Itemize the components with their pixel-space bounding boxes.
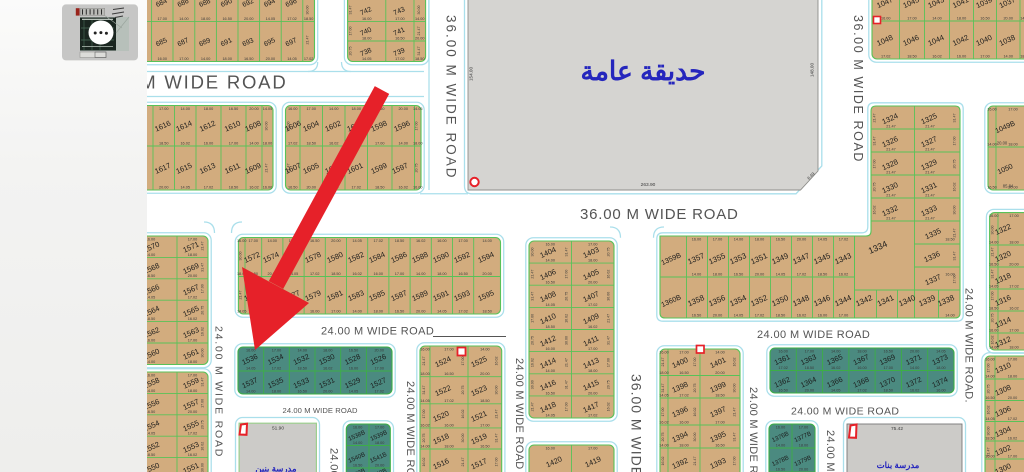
svg-text:21.47: 21.47 (201, 242, 205, 251)
svg-text:16.00: 16.00 (545, 347, 555, 351)
svg-text:18.00: 18.00 (588, 259, 598, 263)
svg-text:20.75: 20.75 (461, 386, 465, 395)
svg-text:148.00: 148.00 (810, 63, 815, 77)
svg-text:16.02: 16.02 (352, 272, 362, 276)
svg-text:20.75: 20.75 (607, 248, 611, 257)
svg-text:17.00: 17.00 (158, 17, 168, 21)
svg-text:17.02: 17.02 (374, 239, 384, 243)
svg-text:85.84: 85.84 (1003, 184, 1014, 189)
svg-text:20.75: 20.75 (953, 160, 957, 169)
svg-text:20.00: 20.00 (159, 185, 169, 189)
svg-text:14.05: 14.05 (985, 417, 995, 421)
svg-text:14.00: 14.00 (987, 142, 997, 146)
svg-text:14.00: 14.00 (201, 57, 211, 61)
svg-text:17.02: 17.02 (1008, 417, 1018, 421)
svg-text:16.02: 16.02 (987, 406, 991, 415)
svg-text:20.00: 20.00 (588, 281, 598, 285)
svg-text:21.47: 21.47 (987, 448, 991, 457)
svg-text:16.50: 16.50 (458, 272, 468, 276)
svg-text:21.47: 21.47 (531, 402, 535, 411)
svg-text:16.02: 16.02 (839, 272, 849, 276)
svg-text:17.00: 17.00 (907, 16, 917, 20)
svg-text:18.50: 18.50 (395, 239, 405, 243)
svg-text:14.00: 14.00 (480, 348, 490, 352)
svg-text:16.00: 16.00 (985, 358, 995, 362)
svg-text:17.00: 17.00 (953, 275, 957, 284)
svg-text:16.02: 16.02 (831, 366, 841, 370)
svg-text:21.47: 21.47 (531, 270, 535, 279)
svg-text:16.50: 16.50 (288, 185, 298, 189)
svg-text:18.00: 18.00 (375, 441, 385, 445)
svg-text:18.50: 18.50 (304, 17, 314, 21)
svg-text:18.00: 18.00 (936, 366, 946, 370)
svg-text:20.75: 20.75 (349, 47, 353, 56)
svg-text:18.00: 18.00 (222, 57, 232, 61)
svg-text:18.00: 18.00 (188, 360, 198, 364)
svg-text:14.05: 14.05 (287, 57, 297, 61)
svg-text:16.00: 16.00 (659, 351, 669, 355)
svg-text:18.00: 18.00 (755, 238, 765, 242)
svg-text:14.00: 14.00 (268, 239, 278, 243)
svg-text:18.00: 18.00 (437, 272, 447, 276)
svg-text:18.00: 18.00 (588, 369, 598, 373)
svg-text:18.00: 18.00 (659, 371, 669, 375)
svg-text:16.00: 16.00 (362, 17, 372, 21)
svg-text:16.50: 16.50 (679, 371, 689, 375)
svg-text:20.00: 20.00 (323, 389, 333, 393)
svg-text:16.00: 16.00 (818, 313, 828, 317)
svg-text:16.00: 16.00 (420, 348, 430, 352)
svg-text:16.50: 16.50 (480, 444, 490, 448)
svg-text:30.00: 30.00 (201, 463, 205, 472)
svg-text:20.75: 20.75 (607, 380, 611, 389)
svg-text:20.75: 20.75 (201, 306, 205, 315)
svg-text:16.02: 16.02 (461, 410, 465, 419)
svg-text:20.00: 20.00 (416, 309, 426, 313)
svg-text:263.90: 263.90 (641, 182, 656, 188)
svg-text:21.47: 21.47 (422, 357, 426, 366)
svg-text:18.00: 18.00 (713, 272, 723, 276)
svg-text:16.00: 16.00 (310, 309, 320, 313)
svg-text:36.00 M WIDE ROAD: 36.00 M WIDE ROAD (444, 15, 459, 180)
svg-text:16.02: 16.02 (565, 314, 569, 323)
svg-text:16.00: 16.00 (444, 423, 454, 427)
svg-text:14.00: 14.00 (734, 238, 744, 242)
svg-text:16.00: 16.00 (437, 239, 447, 243)
svg-text:17.02: 17.02 (679, 393, 689, 397)
svg-text:16.00: 16.00 (263, 185, 273, 189)
svg-text:21.47: 21.47 (495, 410, 499, 419)
svg-text:16.50: 16.50 (244, 57, 254, 61)
svg-text:18.50: 18.50 (480, 399, 490, 403)
svg-text:17.00: 17.00 (422, 410, 426, 419)
svg-text:20.75: 20.75 (873, 183, 877, 192)
svg-text:31.47: 31.47 (201, 378, 205, 387)
svg-text:17.02: 17.02 (351, 185, 361, 189)
svg-text:14.00: 14.00 (545, 259, 555, 263)
svg-text:18.00: 18.00 (444, 444, 454, 448)
svg-text:16.50: 16.50 (715, 443, 725, 447)
svg-text:17.02: 17.02 (374, 389, 384, 393)
svg-text:16.02: 16.02 (422, 458, 426, 467)
svg-text:17.00: 17.00 (249, 239, 259, 243)
svg-text:21.47: 21.47 (925, 147, 935, 151)
svg-text:16.00: 16.00 (857, 366, 867, 370)
svg-text:31.47: 31.47 (733, 433, 737, 442)
svg-text:17.02: 17.02 (881, 54, 891, 58)
svg-text:17.00: 17.00 (349, 27, 353, 36)
svg-text:17.02: 17.02 (1009, 284, 1019, 288)
svg-text:16.02: 16.02 (188, 317, 198, 321)
svg-text:17.00: 17.00 (229, 141, 239, 145)
svg-text:20.00: 20.00 (713, 313, 723, 317)
svg-text:31.47: 31.47 (531, 292, 535, 301)
svg-text:14.00: 14.00 (246, 389, 256, 393)
svg-text:20.00: 20.00 (480, 372, 490, 376)
svg-text:17.00: 17.00 (179, 57, 189, 61)
svg-text:21.47: 21.47 (925, 124, 935, 128)
svg-text:17.00: 17.00 (1008, 454, 1018, 458)
svg-text:14.05: 14.05 (437, 309, 447, 313)
svg-text:16.02: 16.02 (180, 141, 190, 145)
svg-text:16.00: 16.00 (288, 107, 298, 111)
svg-text:16.02: 16.02 (953, 183, 957, 192)
svg-text:20.00: 20.00 (797, 238, 807, 242)
svg-text:14.00: 14.00 (545, 369, 555, 373)
svg-text:21.47: 21.47 (607, 314, 611, 323)
svg-text:30.00: 30.00 (201, 349, 205, 358)
svg-text:36.00 M WIDE ROAD: 36.00 M WIDE ROAD (851, 15, 865, 163)
svg-text:24.00 M WIDE ROAD: 24.00 M WIDE ROAD (757, 329, 870, 341)
svg-text:30.00: 30.00 (265, 122, 269, 131)
svg-text:18.50: 18.50 (776, 313, 786, 317)
svg-text:24.00 M WIDE ROAD: 24.00 M WIDE ROAD (321, 326, 434, 338)
svg-text:18.00: 18.00 (1008, 374, 1018, 378)
svg-text:16.02: 16.02 (495, 357, 499, 366)
svg-text:17.00: 17.00 (395, 272, 405, 276)
svg-text:31.47: 31.47 (565, 380, 569, 389)
svg-text:16.50: 16.50 (980, 16, 990, 20)
svg-text:36.00 M WIDE ROAD: 36.00 M WIDE ROAD (629, 374, 645, 472)
svg-text:18.50: 18.50 (985, 436, 995, 440)
svg-text:17.00: 17.00 (873, 160, 877, 169)
svg-text:16.02: 16.02 (659, 420, 669, 424)
svg-text:16.50: 16.50 (222, 17, 232, 21)
svg-text:17.00: 17.00 (839, 313, 849, 317)
svg-text:14.00: 14.00 (415, 17, 425, 21)
svg-text:21.47: 21.47 (693, 457, 697, 466)
svg-text:16.02: 16.02 (188, 453, 198, 457)
svg-text:17.02: 17.02 (857, 388, 867, 392)
svg-text:14.00: 14.00 (249, 141, 259, 145)
svg-text:17.00: 17.00 (1009, 214, 1019, 218)
svg-text:20.00: 20.00 (588, 391, 598, 395)
svg-text:21.47: 21.47 (461, 458, 465, 467)
svg-text:21.47: 21.47 (991, 248, 995, 257)
svg-text:14.00: 14.00 (398, 141, 408, 145)
svg-text:51.90: 51.90 (272, 426, 284, 432)
svg-text:14.00: 14.00 (416, 272, 426, 276)
svg-text:14.05: 14.05 (831, 388, 841, 392)
svg-text:17.02: 17.02 (755, 313, 765, 317)
svg-text:18.50: 18.50 (159, 141, 169, 145)
svg-text:16.00: 16.00 (987, 108, 997, 112)
svg-text:18.50: 18.50 (482, 309, 492, 313)
svg-text:31.47: 31.47 (565, 248, 569, 257)
svg-text:30.00: 30.00 (693, 433, 697, 442)
svg-text:17.00: 17.00 (565, 270, 569, 279)
svg-text:17.00: 17.00 (201, 284, 205, 293)
svg-text:17.00: 17.00 (588, 347, 598, 351)
svg-text:30.00: 30.00 (306, 6, 310, 15)
svg-text:20.00: 20.00 (482, 272, 492, 276)
svg-text:17.02: 17.02 (310, 272, 320, 276)
svg-text:24.00 M WIDE ROAD: 24.00 M WIDE ROAD (283, 406, 359, 415)
svg-text:24.00 M WIDE ROAD: 24.00 M WIDE ROAD (747, 387, 759, 472)
svg-text:21.47: 21.47 (886, 216, 896, 220)
svg-text:18.00: 18.00 (413, 141, 423, 145)
svg-text:16.00: 16.00 (679, 420, 689, 424)
svg-text:17.00: 17.00 (679, 351, 689, 355)
svg-text:20.00: 20.00 (331, 239, 341, 243)
svg-text:17.00: 17.00 (495, 458, 499, 467)
svg-text:31.47: 31.47 (201, 263, 205, 272)
svg-text:17.00: 17.00 (1009, 328, 1019, 332)
svg-text:16.50: 16.50 (692, 313, 702, 317)
svg-text:16.50: 16.50 (395, 309, 405, 313)
svg-text:17.02: 17.02 (458, 309, 468, 313)
svg-text:30.00: 30.00 (953, 206, 957, 215)
svg-text:18.00: 18.00 (799, 443, 809, 447)
svg-text:17.02: 17.02 (188, 296, 198, 300)
svg-text:17.00: 17.00 (375, 426, 385, 430)
svg-text:14.00: 14.00 (420, 444, 430, 448)
svg-text:17.02: 17.02 (588, 413, 598, 417)
svg-text:17.02: 17.02 (188, 432, 198, 436)
svg-text:31.47: 31.47 (417, 47, 421, 56)
svg-text:17.00: 17.00 (415, 122, 419, 131)
svg-text:18.00: 18.00 (1008, 142, 1018, 146)
svg-text:17.00: 17.00 (884, 366, 894, 370)
svg-text:18.00: 18.00 (1009, 240, 1019, 244)
svg-text:16.50: 16.50 (734, 272, 744, 276)
svg-text:14.00: 14.00 (715, 351, 725, 355)
svg-text:16.50: 16.50 (297, 389, 307, 393)
svg-text:18.00: 18.00 (420, 372, 430, 376)
svg-text:36.00 M WIDE ROAD: 36.00 M WIDE ROAD (580, 206, 739, 223)
svg-text:17.00: 17.00 (715, 420, 725, 424)
svg-text:30.00: 30.00 (987, 427, 991, 436)
svg-text:30.00: 30.00 (531, 380, 535, 389)
svg-text:16.02: 16.02 (329, 141, 339, 145)
svg-text:16.02: 16.02 (323, 366, 333, 370)
svg-text:18.50: 18.50 (306, 141, 316, 145)
svg-text:20.00: 20.00 (375, 463, 385, 467)
svg-text:24.00 M WIDE ROAD: 24.00 M WIDE ROAD (791, 406, 899, 418)
svg-text:17.00: 17.00 (159, 107, 169, 111)
svg-text:14.05: 14.05 (734, 313, 744, 317)
svg-text:14.05: 14.05 (413, 107, 423, 111)
svg-text:20.00: 20.00 (799, 467, 809, 471)
svg-text:31.47: 31.47 (607, 336, 611, 345)
svg-text:18.50: 18.50 (545, 325, 555, 329)
svg-text:20.00: 20.00 (997, 141, 1008, 146)
svg-text:21.47: 21.47 (873, 114, 877, 123)
svg-text:16.02: 16.02 (201, 442, 205, 451)
svg-text:16.00: 16.00 (353, 426, 363, 430)
svg-text:20.75: 20.75 (415, 164, 419, 173)
svg-text:16.02: 16.02 (416, 239, 426, 243)
svg-text:20.00: 20.00 (715, 371, 725, 375)
svg-text:21.47: 21.47 (306, 36, 310, 45)
svg-text:16.50: 16.50 (545, 281, 555, 285)
svg-text:16.02: 16.02 (991, 336, 995, 345)
svg-text:16.02: 16.02 (797, 313, 807, 317)
svg-text:17.00: 17.00 (733, 457, 737, 466)
svg-text:17.00: 17.00 (374, 366, 384, 370)
svg-text:20.00: 20.00 (1003, 16, 1013, 20)
svg-text:21.47: 21.47 (925, 170, 935, 174)
svg-text:30.00: 30.00 (565, 336, 569, 345)
svg-text:مدرسة بنين: مدرسة بنين (255, 464, 297, 472)
svg-text:14.05: 14.05 (545, 303, 555, 307)
svg-text:16.02: 16.02 (1009, 306, 1019, 310)
svg-text:17.00: 17.00 (565, 402, 569, 411)
svg-text:17.00: 17.00 (458, 239, 468, 243)
svg-text:16.02: 16.02 (607, 270, 611, 279)
svg-text:30.00: 30.00 (531, 248, 535, 257)
svg-text:17.00: 17.00 (531, 314, 535, 323)
svg-text:16.00: 16.00 (413, 185, 423, 189)
svg-text:16.50: 16.50 (229, 107, 239, 111)
svg-text:14.05: 14.05 (180, 185, 190, 189)
svg-text:14.00: 14.00 (989, 240, 999, 244)
svg-text:16.00: 16.00 (237, 239, 247, 243)
svg-text:14.00: 14.00 (932, 16, 942, 20)
svg-text:18.00: 18.00 (188, 253, 198, 257)
svg-text:30.00: 30.00 (287, 122, 291, 131)
svg-text:21.47: 21.47 (265, 164, 269, 173)
svg-text:31.47: 31.47 (661, 384, 665, 393)
svg-text:14.00: 14.00 (180, 107, 190, 111)
svg-text:30.00: 30.00 (239, 252, 243, 261)
svg-text:17.02: 17.02 (287, 17, 297, 21)
svg-text:14.00: 14.00 (353, 441, 363, 445)
svg-text:17.00: 17.00 (444, 348, 454, 352)
svg-text:14.05: 14.05 (237, 309, 247, 313)
svg-text:17.00: 17.00 (987, 364, 991, 373)
svg-text:20.00: 20.00 (188, 410, 198, 414)
svg-text:21.47: 21.47 (661, 358, 665, 367)
svg-text:18.50: 18.50 (415, 57, 425, 61)
svg-text:14.05: 14.05 (776, 272, 786, 276)
svg-text:24.00 M WIDE ROAD.: 24.00 M WIDE ROAD. (963, 288, 975, 403)
svg-text:75.42: 75.42 (891, 426, 903, 432)
svg-text:16.50: 16.50 (444, 372, 454, 376)
svg-text:18.50: 18.50 (229, 185, 239, 189)
svg-text:16.00: 16.00 (349, 366, 359, 370)
svg-text:16.50: 16.50 (987, 185, 997, 189)
svg-text:14.05: 14.05 (818, 238, 828, 242)
svg-text:17.00: 17.00 (799, 426, 809, 430)
svg-text:16.02: 16.02 (201, 327, 205, 336)
svg-text:16.50: 16.50 (776, 467, 786, 471)
svg-text:16.02: 16.02 (607, 402, 611, 411)
svg-text:17.02: 17.02 (588, 303, 598, 307)
svg-text:18.00: 18.00 (351, 107, 361, 111)
svg-text:17.00: 17.00 (395, 17, 405, 21)
svg-text:21.47: 21.47 (417, 27, 421, 36)
svg-text:14.00: 14.00 (659, 443, 669, 447)
svg-text:14.00: 14.00 (692, 272, 702, 276)
svg-text:16.50: 16.50 (353, 463, 363, 467)
svg-text:16.02: 16.02 (733, 358, 737, 367)
svg-text:16.50: 16.50 (985, 396, 995, 400)
svg-text:17.00: 17.00 (607, 358, 611, 367)
svg-text:17.00: 17.00 (713, 238, 723, 242)
svg-text:20.00: 20.00 (266, 57, 276, 61)
svg-text:24.00 M: 24.00 M (328, 448, 340, 472)
svg-text:20.75: 20.75 (693, 384, 697, 393)
svg-text:18.00: 18.00 (679, 443, 689, 447)
svg-text:16.02: 16.02 (398, 185, 408, 189)
svg-text:30.00: 30.00 (417, 6, 421, 15)
svg-text:14.00: 14.00 (910, 366, 920, 370)
svg-text:14.00: 14.00 (482, 239, 492, 243)
svg-text:24.00 M WIDE ROAD: 24.00 M WIDE ROAD (513, 358, 525, 469)
svg-text:14.05: 14.05 (659, 393, 669, 397)
svg-text:16.00: 16.00 (158, 57, 168, 61)
svg-text:17.02: 17.02 (288, 141, 298, 145)
svg-text:20.00: 20.00 (306, 185, 316, 189)
svg-text:31.47: 31.47 (495, 434, 499, 443)
svg-text:16.50: 16.50 (778, 388, 788, 392)
svg-text:20.75: 20.75 (991, 314, 995, 323)
svg-text:حديقة عامة: حديقة عامة (581, 56, 706, 86)
svg-text:18.50: 18.50 (884, 388, 894, 392)
svg-text:18.00: 18.00 (201, 17, 211, 21)
svg-text:14.05: 14.05 (246, 366, 256, 370)
svg-text:17.02: 17.02 (304, 57, 314, 61)
svg-text:16.00: 16.00 (936, 388, 946, 392)
svg-text:14.05: 14.05 (420, 399, 430, 403)
svg-text:18.50: 18.50 (907, 54, 917, 58)
svg-text:18.00: 18.00 (374, 309, 384, 313)
svg-text:14.05: 14.05 (545, 413, 555, 417)
svg-text:18.00: 18.00 (204, 107, 214, 111)
svg-text:21.47: 21.47 (565, 358, 569, 367)
svg-text:30.00: 30.00 (461, 434, 465, 443)
svg-text:14.00: 14.00 (1003, 54, 1013, 58)
svg-text:16.00: 16.00 (989, 214, 999, 218)
svg-text:20.00: 20.00 (755, 272, 765, 276)
svg-text:14.00: 14.00 (776, 443, 786, 447)
svg-text:16.02: 16.02 (693, 408, 697, 417)
svg-text:16.00: 16.00 (692, 238, 702, 242)
svg-text:16.02: 16.02 (661, 457, 665, 466)
svg-text:20.75: 20.75 (201, 420, 205, 429)
svg-text:20.75: 20.75 (565, 292, 569, 301)
svg-text:18.50: 18.50 (375, 185, 385, 189)
svg-text:17.00: 17.00 (331, 309, 341, 313)
svg-text:17.02: 17.02 (778, 366, 788, 370)
svg-text:30.00: 30.00 (991, 226, 995, 235)
svg-text:16.00: 16.00 (957, 54, 967, 58)
svg-text:17.02: 17.02 (839, 238, 849, 242)
svg-text:20.75: 20.75 (531, 336, 535, 345)
svg-text:20.00: 20.00 (244, 17, 254, 21)
svg-text:مدرسة بنات: مدرسة بنات (877, 460, 920, 471)
